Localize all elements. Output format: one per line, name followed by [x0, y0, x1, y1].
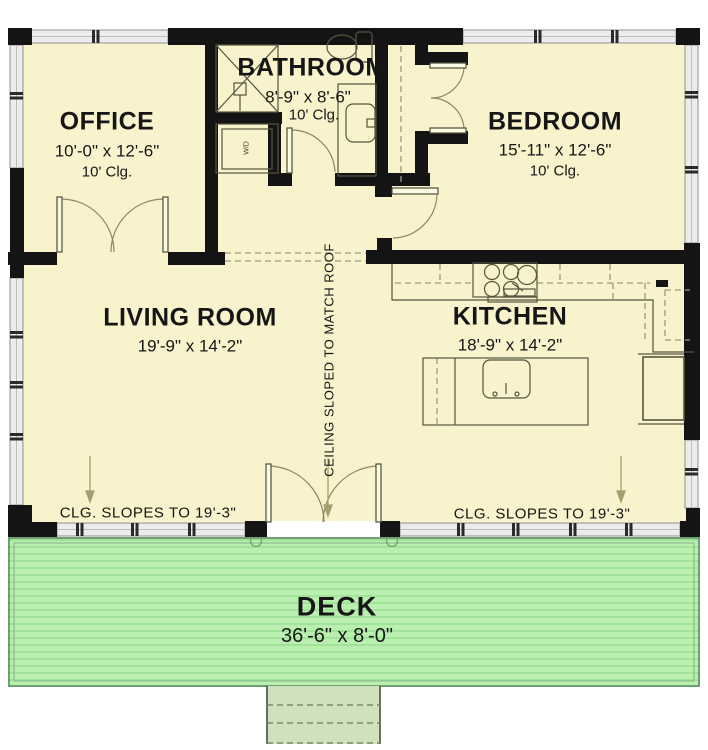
- ceiling-sloped-note: CEILING SLOPED TO MATCH ROOF: [323, 243, 336, 477]
- living-room-label: LIVING ROOM: [103, 306, 277, 331]
- ceiling-slope-note-right: CLG. SLOPES TO 19'-3": [454, 507, 631, 522]
- house-floor: [10, 30, 698, 535]
- bathroom-label: BATHROOM: [237, 56, 386, 81]
- deck-dimensions: 36'-6" x 8'-0": [281, 626, 393, 646]
- office-dimensions: 10'-0" x 12'-6": [55, 143, 160, 160]
- deck-door-threshold: [267, 521, 380, 537]
- office-label: OFFICE: [60, 110, 155, 135]
- kitchen-label: KITCHEN: [453, 305, 568, 330]
- ceiling-slope-note-left: CLG. SLOPES TO 19'-3": [60, 506, 237, 521]
- living-room-dimensions: 19'-9" x 14'-2": [138, 338, 243, 355]
- bathroom-ceiling: 10' Clg.: [289, 108, 339, 123]
- floor-plan: OFFICE 10'-0" x 12'-6" 10' Clg. BATHROOM…: [0, 0, 708, 750]
- kitchen-dimensions: 18'-9" x 14'-2": [458, 337, 563, 354]
- bedroom-dimensions: 15'-11" x 12'-6": [499, 142, 612, 159]
- bedroom-label: BEDROOM: [488, 110, 622, 135]
- deck-steps: [267, 686, 380, 744]
- office-ceiling: 10' Clg.: [82, 165, 132, 180]
- wall-mark: [656, 280, 668, 287]
- bathroom-dimensions: 8'-9" x 8'-6": [265, 89, 351, 106]
- washer-dryer-label: W/D: [244, 141, 251, 155]
- bedroom-ceiling: 10' Clg.: [530, 164, 580, 179]
- deck-label: DECK: [297, 594, 378, 621]
